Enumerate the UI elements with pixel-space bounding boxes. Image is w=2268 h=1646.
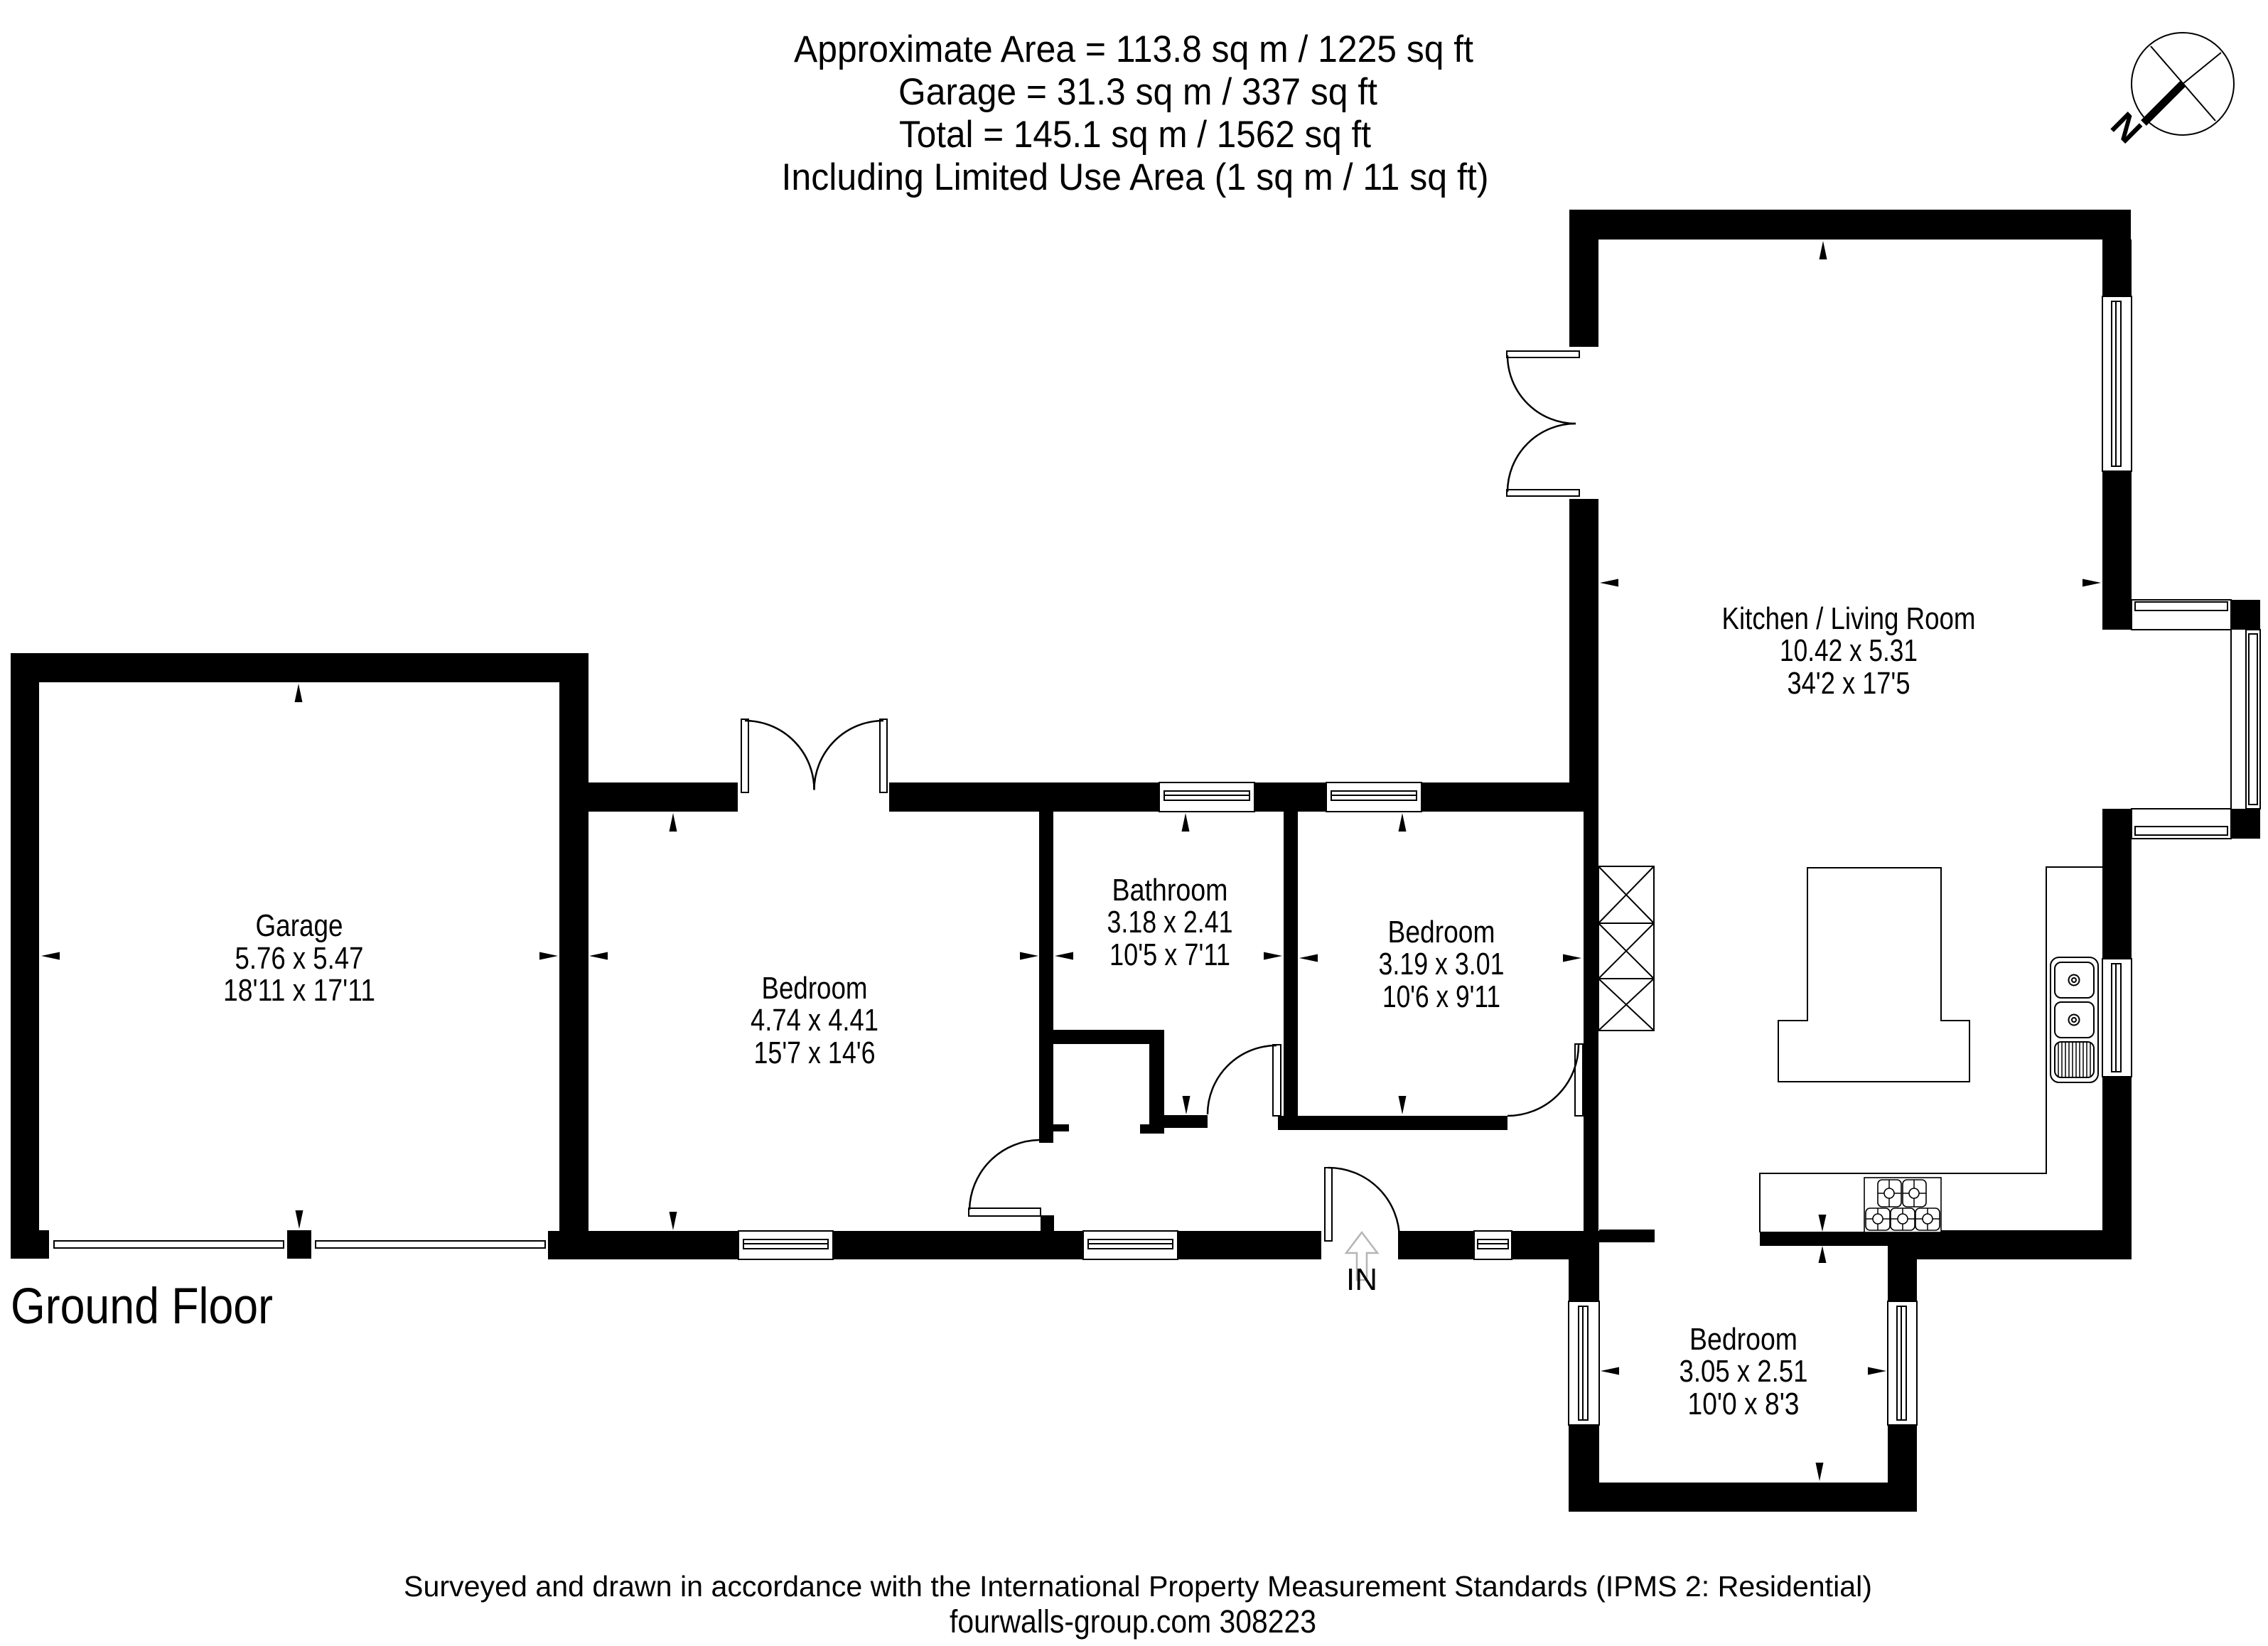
svg-text:Bedroom: Bedroom xyxy=(1689,1322,1797,1357)
svg-text:4.74 x 4.41: 4.74 x 4.41 xyxy=(751,1003,878,1038)
svg-text:Approximate Area = 113.8 sq m: Approximate Area = 113.8 sq m / 1225 sq … xyxy=(794,28,1473,70)
svg-text:34'2 x 17'5: 34'2 x 17'5 xyxy=(1788,666,1910,701)
svg-text:Kitchen / Living Room: Kitchen / Living Room xyxy=(1722,601,1976,636)
svg-text:Total = 145.1 sq m / 1562 sq f: Total = 145.1 sq m / 1562 sq ft xyxy=(899,114,1371,156)
svg-text:Including Limited Use Area (1: Including Limited Use Area (1 sq m / 11 … xyxy=(782,156,1489,198)
svg-text:10'5 x 7'11: 10'5 x 7'11 xyxy=(1109,937,1230,972)
svg-text:Bedroom: Bedroom xyxy=(762,971,868,1006)
svg-text:10'6 x 9'11: 10'6 x 9'11 xyxy=(1382,979,1500,1014)
svg-text:10'0 x 8'3: 10'0 x 8'3 xyxy=(1688,1387,1800,1421)
svg-text:15'7 x 14'6: 15'7 x 14'6 xyxy=(754,1036,876,1070)
svg-text:Garage = 31.3 sq m / 337 sq ft: Garage = 31.3 sq m / 337 sq ft xyxy=(898,71,1377,113)
svg-text:3.19 x 3.01: 3.19 x 3.01 xyxy=(1379,947,1505,981)
svg-text:IN: IN xyxy=(1346,1262,1377,1297)
svg-text:Ground Floor: Ground Floor xyxy=(11,1279,273,1335)
svg-text:fourwalls-group.com 308223: fourwalls-group.com 308223 xyxy=(950,1603,1316,1640)
svg-text:10.42 x 5.31: 10.42 x 5.31 xyxy=(1780,633,1918,668)
svg-text:5.76 x 5.47: 5.76 x 5.47 xyxy=(235,941,364,976)
svg-text:3.18 x 2.41: 3.18 x 2.41 xyxy=(1107,905,1233,940)
svg-text:Surveyed and drawn in accordan: Surveyed and drawn in accordance with th… xyxy=(404,1570,1872,1603)
svg-text:Garage: Garage xyxy=(256,908,343,943)
svg-text:Bedroom: Bedroom xyxy=(1388,915,1495,950)
svg-text:Bathroom: Bathroom xyxy=(1112,873,1228,908)
svg-text:3.05 x 2.51: 3.05 x 2.51 xyxy=(1679,1354,1808,1389)
svg-text:18'11 x 17'11: 18'11 x 17'11 xyxy=(223,973,375,1008)
